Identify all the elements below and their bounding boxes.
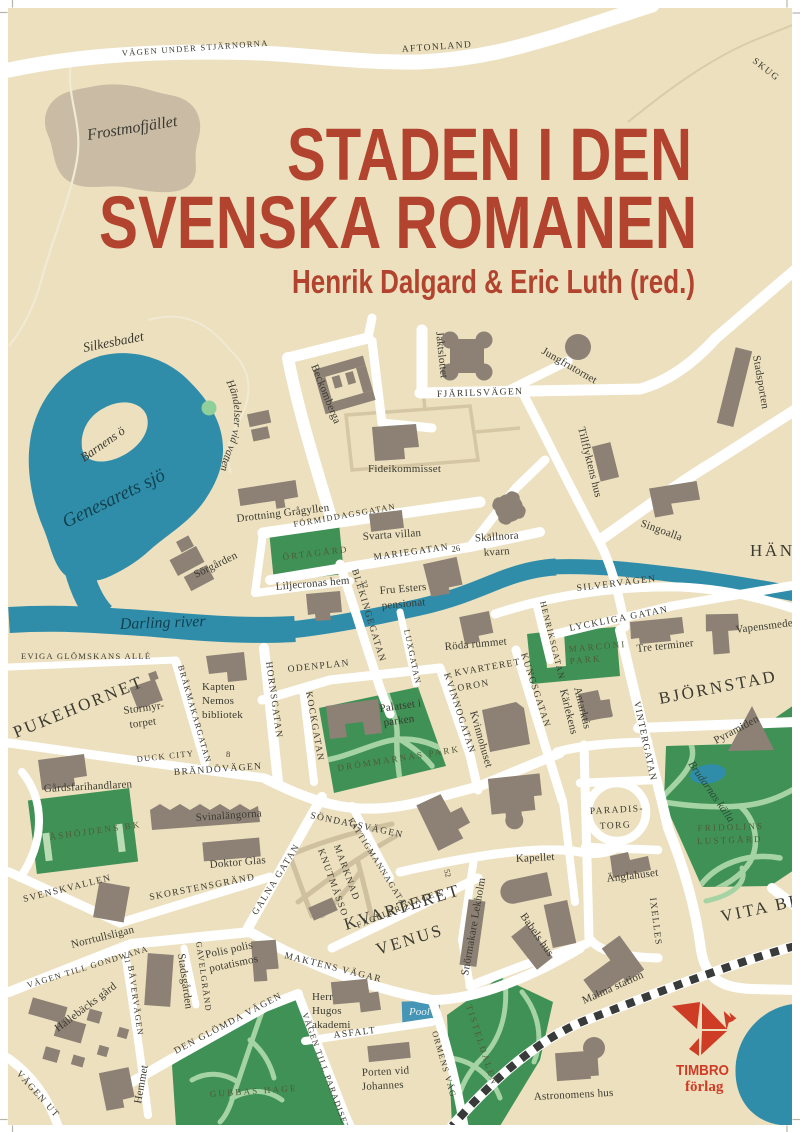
svg-text:Henrik Dalgard & Eric Luth (re: Henrik Dalgard & Eric Luth (red.) xyxy=(292,263,695,300)
svg-text:Hugos: Hugos xyxy=(312,1005,342,1017)
svg-text:8: 8 xyxy=(226,749,230,759)
svg-text:Porten vid: Porten vid xyxy=(362,1065,410,1079)
svg-text:bibliotek: bibliotek xyxy=(202,709,243,721)
svg-text:26: 26 xyxy=(451,543,461,554)
svg-text:Kapellet: Kapellet xyxy=(516,851,555,865)
svg-text:SVENSKA ROMANEN: SVENSKA ROMANEN xyxy=(99,181,697,264)
svg-text:Herr: Herr xyxy=(312,991,333,1003)
svg-text:Kapten: Kapten xyxy=(202,681,235,693)
svg-text:Fideikommisset: Fideikommisset xyxy=(368,463,441,475)
svg-text:förlag: förlag xyxy=(685,1079,724,1095)
svg-text:TORG: TORG xyxy=(600,820,632,832)
svg-text:Darling river: Darling river xyxy=(119,613,207,633)
svg-text:Pool: Pool xyxy=(408,1006,430,1018)
svg-text:TIMBRO: TIMBRO xyxy=(676,1062,729,1079)
svg-text:Johannes: Johannes xyxy=(362,1079,405,1093)
svg-text:kvarn: kvarn xyxy=(483,545,510,559)
svg-text:11: 11 xyxy=(122,955,132,964)
svg-text:Nemos: Nemos xyxy=(202,695,234,707)
svg-text:EVIGA GLÖMSKANS ALLÉ: EVIGA GLÖMSKANS ALLÉ xyxy=(21,651,151,661)
